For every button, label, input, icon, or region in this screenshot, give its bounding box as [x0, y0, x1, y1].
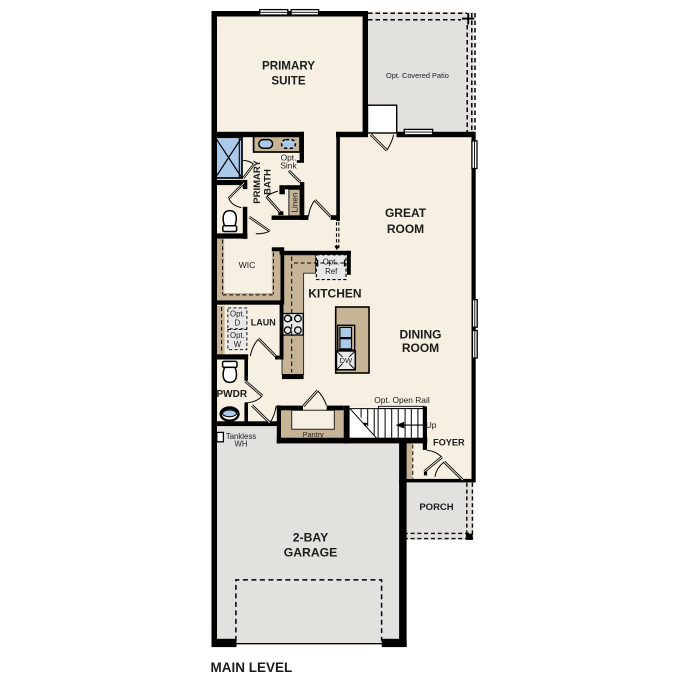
- svg-text:Opt. Open Rail: Opt. Open Rail: [374, 395, 430, 405]
- svg-text:Opt.: Opt.: [230, 331, 245, 340]
- svg-text:FOYER: FOYER: [433, 438, 465, 448]
- svg-text:W: W: [234, 340, 242, 349]
- svg-text:Up: Up: [426, 420, 437, 430]
- svg-text:WH: WH: [235, 440, 248, 449]
- svg-text:PORCH: PORCH: [419, 502, 453, 513]
- svg-text:D: D: [235, 319, 241, 328]
- svg-text:PRIMARY: PRIMARY: [262, 60, 315, 73]
- svg-text:Ref: Ref: [325, 267, 338, 276]
- svg-text:Linen: Linen: [290, 192, 299, 212]
- svg-text:WIC: WIC: [239, 260, 256, 270]
- svg-text:GREAT: GREAT: [385, 206, 427, 220]
- svg-text:Sink: Sink: [280, 161, 297, 171]
- svg-text:Opt. Covered Patio: Opt. Covered Patio: [386, 71, 449, 80]
- svg-text:SUITE: SUITE: [271, 75, 305, 88]
- svg-text:Opt..: Opt..: [323, 257, 340, 266]
- svg-text:DINING: DINING: [400, 328, 442, 342]
- svg-text:KITCHEN: KITCHEN: [308, 287, 361, 301]
- svg-text:DW: DW: [339, 356, 352, 365]
- svg-text:PWDR: PWDR: [217, 389, 248, 400]
- svg-text:Opt.: Opt.: [230, 310, 245, 319]
- svg-text:LAUN: LAUN: [251, 317, 276, 327]
- svg-text:MAIN LEVEL: MAIN LEVEL: [211, 660, 293, 675]
- svg-text:ROOM: ROOM: [402, 341, 439, 355]
- svg-text:BATH: BATH: [263, 169, 274, 195]
- svg-text:ROOM: ROOM: [387, 222, 424, 236]
- svg-text:2-BAY: 2-BAY: [293, 530, 328, 544]
- svg-text:GARAGE: GARAGE: [284, 545, 338, 559]
